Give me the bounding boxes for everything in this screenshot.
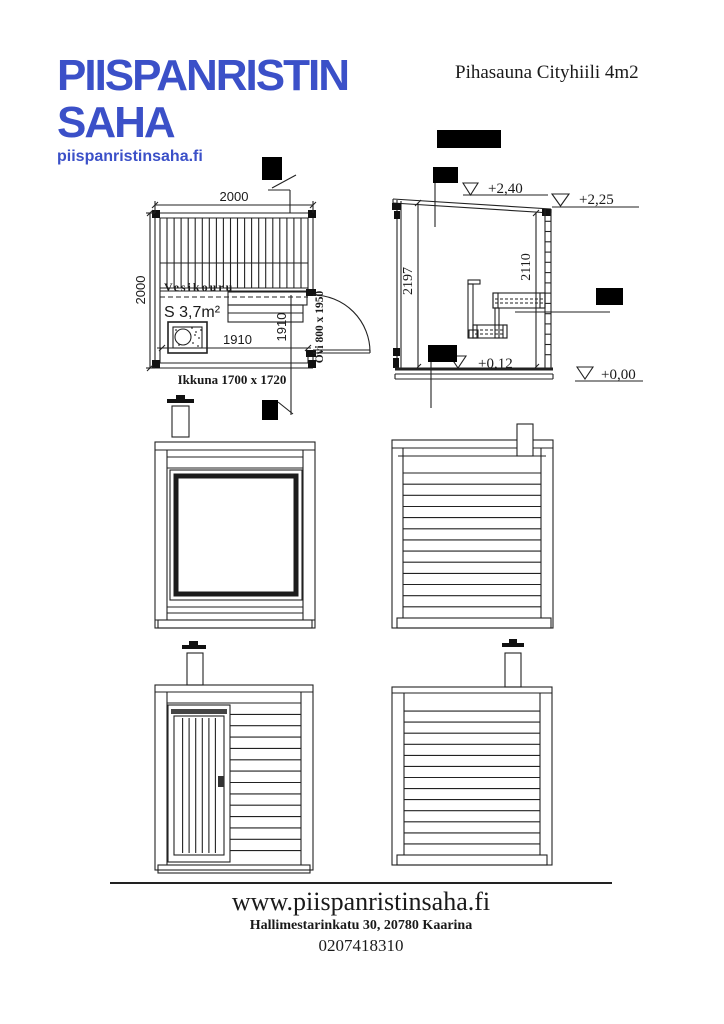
- dim-plan-depth-label: 2000: [133, 276, 148, 305]
- dim-inner-width-label: 1910: [223, 332, 252, 347]
- footer-website: www.piispanristinsaha.fi: [110, 887, 612, 916]
- redaction-box: [262, 157, 282, 180]
- redaction-box: [437, 130, 501, 148]
- logo-line-2: SAHA: [57, 99, 348, 146]
- logo-line-1: PIISPANRISTIN: [57, 52, 348, 99]
- plinth: [158, 620, 312, 628]
- document-title: Pihasauna Cityhiili 4m2: [455, 62, 639, 84]
- area-label: S 3,7m²: [164, 304, 221, 321]
- window-size-label: Ikkuna 1700 x 1720: [178, 372, 287, 387]
- drawing-sheet: PIISPANRISTIN SAHA piispanristinsaha.fi …: [0, 0, 724, 1024]
- footer-phone: 0207418310: [110, 936, 612, 956]
- chimney-icon: [502, 639, 524, 687]
- bench-section: [468, 280, 610, 338]
- wall-board-ticks: [546, 221, 551, 354]
- footer-address: Hallimestarinkatu 30, 20780 Kaarina: [110, 917, 612, 934]
- dim-height-right-label: 2110: [519, 253, 534, 280]
- redaction-box: [428, 345, 457, 362]
- door-planks: [183, 718, 216, 853]
- dim-height-left-label: 2197: [401, 267, 416, 295]
- level-eave-label: +2,25: [579, 192, 614, 208]
- dim-plan-width-label: 2000: [220, 189, 249, 204]
- elevation-side-slats: [383, 420, 563, 638]
- dim-inner-depth-label: 1910: [274, 313, 289, 342]
- elevation-front-door: [138, 640, 333, 885]
- level-ridge-label: +2,40: [488, 181, 523, 197]
- chimney-icon: [167, 395, 194, 437]
- section-drawing: +2,40 +2,25 +0,12 +0,00 2197 2110: [385, 155, 665, 435]
- chimney-icon: [517, 424, 533, 456]
- redaction-box: [433, 167, 458, 183]
- plinth: [158, 865, 310, 873]
- footer: www.piispanristinsaha.fi Hallimestarinka…: [110, 887, 612, 956]
- door-size-label: Ovi 800 x 1950: [314, 290, 326, 363]
- redaction-box: [596, 288, 623, 305]
- door-leaf: [168, 705, 230, 862]
- elevation-back-slats: [383, 635, 563, 880]
- footer-divider: [110, 882, 612, 884]
- level-floor-label: +0,12: [478, 356, 513, 372]
- level-ground-label: +0,00: [601, 367, 636, 383]
- door-handle: [218, 776, 224, 787]
- window-symbol: [170, 470, 302, 600]
- elevation-front-window: [148, 393, 328, 643]
- plinth: [397, 618, 551, 628]
- deck-slats: [167, 218, 301, 288]
- slat-boards: [230, 714, 301, 850]
- chimney-icon: [182, 641, 206, 685]
- slat-boards: [403, 484, 541, 607]
- plinth: [397, 855, 547, 865]
- slat-boards: [404, 711, 540, 844]
- company-logo: PIISPANRISTIN SAHA piispanristinsaha.fi: [57, 52, 348, 166]
